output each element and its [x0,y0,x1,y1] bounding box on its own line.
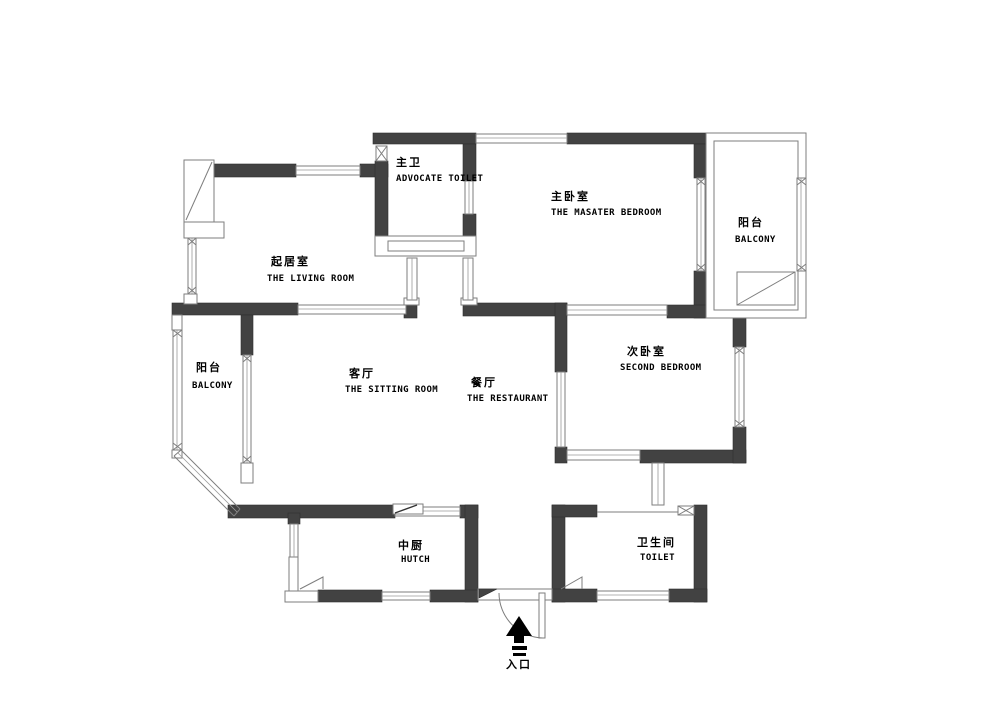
room-label-second-bedroom: 次卧室 SECOND BEDROOM [620,344,702,373]
room-name-zh: 餐厅 [470,375,497,389]
room-name-zh: 主卫 [396,155,422,169]
room-label-master-bedroom: 主卧室 THE MASATER BEDROOM [551,189,662,218]
wall-segment [669,589,707,602]
room-label-restaurant: 餐厅 THE RESTAURANT [467,375,549,404]
room-name-en: ADVOCATE TOILET [396,174,483,184]
room-name-zh: 客厅 [348,366,375,380]
diagonal-window-inner [181,450,240,509]
window [296,166,360,175]
doors [300,504,678,638]
kitchen-wall-piece [289,557,298,591]
wall-segment [241,315,253,355]
arrow-stem [514,636,524,643]
room-name-zh: 卫生间 [637,535,676,549]
floor-plan-page: 主卫 ADVOCATE TOILET 主卧室 THE MASATER BEDRO… [0,0,1000,707]
wall-segment [694,505,707,602]
wall-segment [463,303,567,316]
arrow-head [506,616,532,636]
wall-segment [733,427,746,463]
room-label-sitting-room: 客厅 THE SITTING ROOM [345,366,438,395]
room-name-en: THE MASATER BEDROOM [551,208,662,218]
room-name-zh: 次卧室 [627,344,666,358]
window [735,347,744,427]
wall-segment [640,450,746,463]
wall-segment [567,133,706,144]
room-label-living-room: 起居室 THE LIVING ROOM [267,254,354,284]
room-label-toilet: 卫生间 TOILET [637,535,676,563]
entry-door-leaf [539,593,545,638]
window [173,330,182,450]
toilet-lower-band-inner [388,241,464,251]
room-name-en: THE LIVING ROOM [267,274,354,284]
wall-segment [288,513,300,524]
wall-segment [375,161,388,236]
wall-segment [373,133,476,144]
diagonal-window-outer [174,456,234,516]
room-name-zh: 起居室 [270,254,310,268]
entrance-label: 入口 [506,658,532,671]
wall-segment [430,590,478,602]
room-label-hutch: 中厨 HUTCH [398,538,430,565]
room-name-en: THE SITTING ROOM [345,385,438,395]
room-name-en: BALCONY [192,381,233,391]
thin-structures [172,133,806,602]
wall-segment [555,303,567,372]
room-name-zh: 中厨 [398,538,424,552]
wall-segment [210,164,296,177]
room-name-en: TOILET [640,553,675,563]
arrow-bar [512,646,527,650]
bay-sill [184,222,224,238]
room-name-en: SECOND BEDROOM [620,363,702,373]
diagonal-window-line [178,453,237,512]
wall-segment [552,589,597,602]
window [298,305,406,314]
room-label-balcony-left: 阳台 BALCONY [192,360,233,391]
room-name-en: BALCONY [735,235,776,245]
room-name-zh: 阳台 [196,360,222,374]
window [797,178,806,271]
wall-stub [184,294,197,304]
balcony-wall-piece [172,315,182,330]
room-name-en: THE RESTAURANT [467,394,549,404]
room-name-zh: 主卧室 [551,189,590,203]
wall-segment [552,505,597,517]
room-name-en: HUTCH [401,555,430,565]
wall-segment [555,447,567,463]
room-name-zh: 阳台 [738,215,764,229]
window [476,134,567,143]
floor-plan-svg: 主卫 ADVOCATE TOILET 主卧室 THE MASATER BEDRO… [0,0,1000,707]
wall-segment [465,505,478,602]
divider-sill [241,463,253,483]
window [597,591,669,600]
wall-segment [318,590,382,602]
wall-segment [172,303,298,315]
kitchen-corner-box [285,591,318,602]
kitchen-door-swing [300,577,323,589]
arrow-bar [513,653,526,656]
wall-segment [228,505,395,518]
